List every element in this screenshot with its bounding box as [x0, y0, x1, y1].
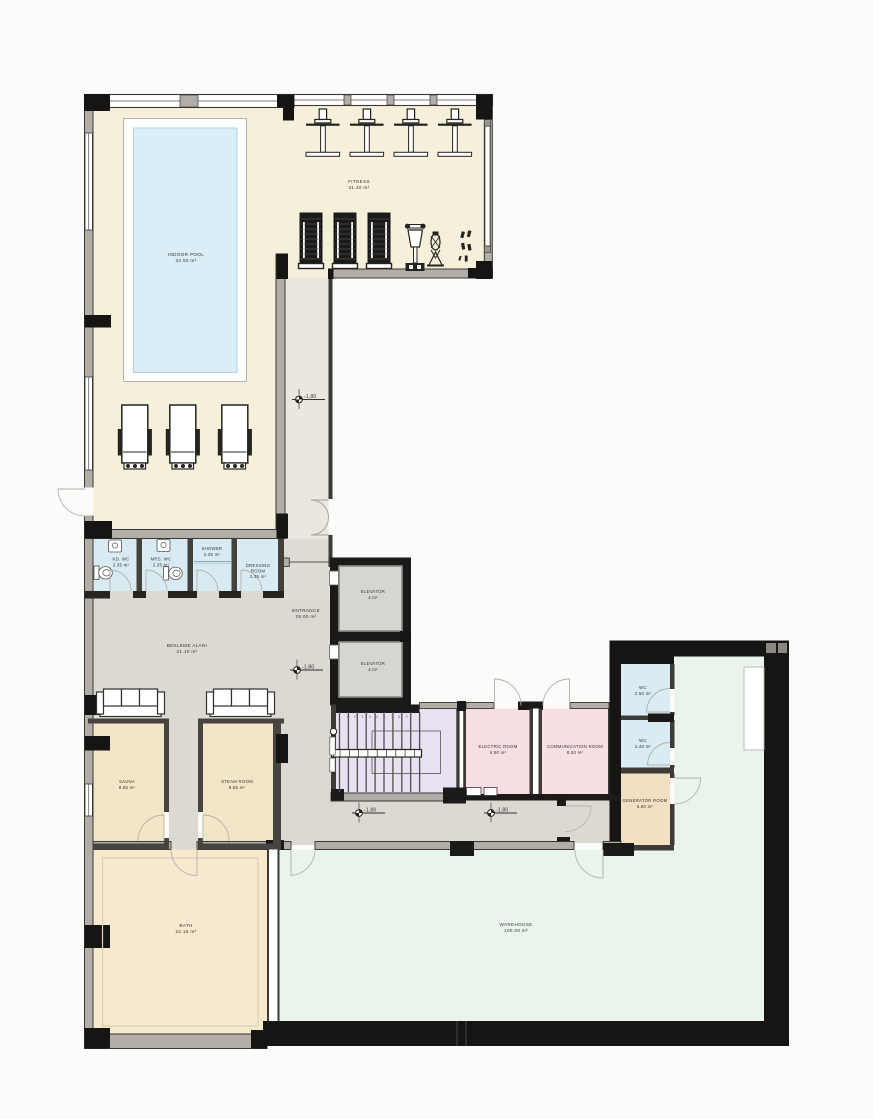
svg-text:FITNESS: FITNESS — [348, 179, 370, 184]
svg-text:2.40 m²: 2.40 m² — [635, 744, 652, 749]
svg-text:22.15 m²: 22.15 m² — [176, 929, 197, 934]
svg-text:ELECTRIC ROOM: ELECTRIC ROOM — [478, 744, 517, 749]
svg-text:2.35 m²: 2.35 m² — [250, 574, 267, 579]
svg-text:WC: WC — [639, 738, 647, 743]
svg-text:4 m²: 4 m² — [368, 595, 378, 600]
svg-text:GENERATOR ROOM: GENERATOR ROOM — [623, 798, 668, 803]
svg-text:31.40 m²: 31.40 m² — [349, 185, 370, 190]
svg-text:123456789: 123456789 — [347, 715, 413, 719]
svg-text:DRESSING: DRESSING — [246, 563, 271, 568]
svg-text:29.00 m²: 29.00 m² — [296, 614, 317, 619]
svg-text:WC: WC — [639, 685, 647, 690]
svg-text:ELEVATOR: ELEVATOR — [361, 661, 385, 666]
svg-text:2.35 m²: 2.35 m² — [204, 552, 221, 557]
svg-text:INDOOR POOL: INDOOR POOL — [168, 252, 204, 257]
svg-text:2.50 m²: 2.50 m² — [635, 691, 652, 696]
svg-text:8.00 m²: 8.00 m² — [567, 750, 584, 755]
svg-text:ROOM: ROOM — [251, 569, 266, 574]
svg-text:8.55 m²: 8.55 m² — [229, 785, 246, 790]
svg-text:4 m²: 4 m² — [368, 667, 378, 672]
svg-text:SHOWER: SHOWER — [202, 546, 223, 551]
svg-text:MRS. WC: MRS. WC — [151, 557, 172, 562]
svg-text:2.35 m²: 2.35 m² — [113, 563, 130, 568]
svg-text:34.50 m²: 34.50 m² — [176, 258, 197, 263]
svg-text:5.60 m²: 5.60 m² — [637, 804, 654, 809]
svg-text:COMMUNICATION ROOM: COMMUNICATION ROOM — [547, 744, 603, 749]
svg-text:2.35 m²: 2.35 m² — [153, 563, 170, 568]
svg-text:KD. WC: KD. WC — [112, 557, 129, 562]
svg-text:WAREHOUSE: WAREHOUSE — [499, 922, 532, 927]
svg-text:8.55 m²: 8.55 m² — [119, 785, 136, 790]
svg-text:ELEVATOR: ELEVATOR — [361, 589, 385, 594]
svg-text:BATH: BATH — [179, 923, 192, 928]
svg-text:ENTRANCE: ENTRANCE — [292, 608, 320, 613]
svg-text:SAUNA: SAUNA — [119, 779, 135, 784]
svg-text:-1.80: -1.80 — [304, 394, 316, 400]
svg-text:STEAM ROOM: STEAM ROOM — [221, 779, 253, 784]
svg-text:21.10 m²: 21.10 m² — [177, 649, 198, 654]
svg-text:100.00 m²: 100.00 m² — [504, 928, 528, 933]
svg-text:BEKLEME ALANI: BEKLEME ALANI — [167, 643, 208, 648]
svg-text:6.50 m²: 6.50 m² — [490, 750, 507, 755]
